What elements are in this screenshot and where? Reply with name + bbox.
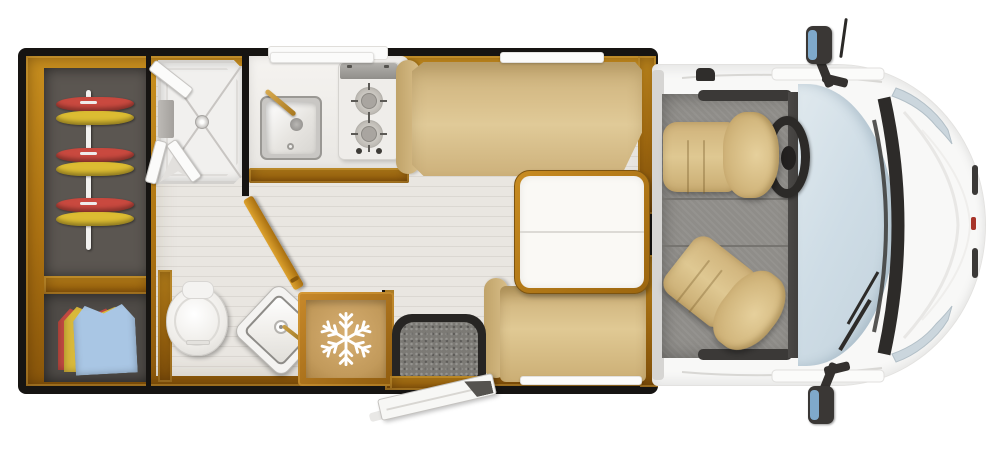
seat-seam [675,260,710,304]
hanger-yellow-icon [56,162,134,176]
shower-fitting [158,100,174,138]
burner-core [361,126,377,142]
burner-tick [368,145,370,152]
hob-knob [376,148,382,154]
hanger-hook [80,152,97,155]
hob-hinge [347,65,352,68]
hanger-red-icon [56,97,134,111]
wiper-arm-icon [848,272,878,324]
hood-crease [922,130,970,320]
hob-hinge [384,65,389,68]
door-hinge [464,376,493,399]
burner-tick [351,133,358,135]
roof-fitting [696,68,715,81]
kitchen-counter-edge [249,168,409,183]
window-sill [500,52,604,63]
toilet-cistern [182,281,214,299]
wardrobe-divider-wall [44,276,150,294]
toilet-seat [174,296,220,346]
burner-tick [368,83,370,90]
hanger-yellow-icon [56,111,134,125]
hanger-red-icon [56,148,134,162]
window-sill [270,52,374,63]
table-fold-line [520,231,644,233]
driver-seat [663,112,781,198]
brand-badge [971,217,976,230]
snowflake-icon [314,307,378,371]
toilet-flush [186,340,210,345]
hanger-red-icon [56,198,134,212]
window-sill [520,376,642,385]
refrigerator [306,300,386,378]
travel-bench-seat [500,286,646,382]
wall-seam [146,56,151,386]
door-handle [290,275,300,283]
burner-tick [380,133,387,135]
seat-backrest [723,112,779,198]
entrance-mat [400,322,478,376]
seat-seam [687,140,689,194]
burner-tick [351,100,358,102]
faucet-head [290,118,303,131]
burner-tick [368,116,370,123]
sink-drain [287,143,294,150]
mirror-glass [810,390,819,420]
lounge-sofa [412,62,642,176]
burner-core [361,93,377,109]
hanger-yellow-icon [56,212,134,226]
grille-slit [972,165,978,195]
hanger-hook [80,101,97,104]
grille-slit [972,248,978,278]
mirror-glass [808,30,817,60]
hob-knob [356,148,362,154]
floorplan-canvas [0,0,1000,450]
wiper-arm-icon [840,300,870,350]
steering-hub [781,146,796,170]
wall-seam [242,56,249,196]
hanger-hook [80,202,97,205]
burner-tick [380,100,387,102]
shower-drain [195,115,209,129]
seat-seam [703,140,705,194]
hood-crease [904,112,958,338]
